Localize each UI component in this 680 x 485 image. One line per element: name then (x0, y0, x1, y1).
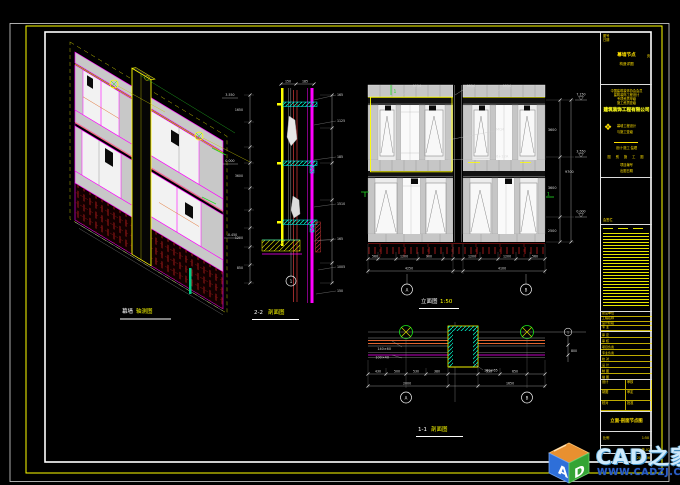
sec2-top-dim: 150 (285, 80, 291, 84)
sec2-level: -0.450 (227, 233, 237, 237)
sec2-note: 150 (337, 289, 343, 293)
drawing-canvas: 1650 3600 1200 850 3.550 0.000 -0.450 15… (0, 0, 680, 485)
title-block: 图号 日期 幕墙节点 页 构造详图 中国建筑装饰协会会员 建筑装饰工程设计 专项… (600, 32, 651, 462)
sec2-note: 165 (337, 237, 343, 241)
elevation-note: MQ4 (503, 84, 512, 88)
elevation-ground-hatch (368, 244, 545, 258)
plan-dim: 530 (413, 370, 419, 374)
titleblock-table: 设计 审核 制图 审定 校对 批准 (601, 380, 652, 412)
axis-letter: B (525, 287, 528, 292)
sec2-left-dim: 1650 (235, 108, 243, 112)
cad-sheet: 1650 3600 1200 850 3.550 0.000 -0.450 15… (0, 0, 680, 485)
box-a-corner2: 日期 (603, 38, 609, 42)
isometric-view (70, 28, 250, 317)
spaced-row: 图 别 施 工 图 (601, 155, 652, 159)
company-name: 建筑装饰工程有限公司 (601, 108, 652, 113)
box-c-label: 会签栏 (603, 218, 613, 222)
elevation-right-dim: 2500 (548, 229, 557, 233)
sec2-level-flags (222, 98, 240, 238)
table-cell: 批准 (626, 401, 652, 411)
elev-dim: 1200 (400, 255, 408, 259)
sec2-note: 1005 (337, 265, 345, 269)
box-a-line1: 幕墙节点 (601, 52, 652, 58)
elevation-block-left (368, 85, 453, 242)
elev-dim: 560 (372, 255, 378, 259)
sec2-level: 3.550 (225, 93, 234, 97)
box-a-line1-side: 页 (647, 54, 650, 58)
sec1-title-white: 1-1 (418, 427, 427, 433)
titleblock-box-b: 中国建筑装饰协会会员 建筑装饰工程设计 专项资质甲级 施工资质壹级 建筑装饰工程… (601, 85, 652, 178)
sec2-note: 165 (337, 93, 343, 97)
sec2-mullion (311, 88, 314, 303)
table-cell: 设计 (601, 380, 626, 390)
sec2-note: 1125 (337, 119, 345, 123)
sec2-sash (291, 196, 300, 218)
iso-title-yellow: 轴测图 (136, 307, 153, 315)
elevation-title-yellow: 1:50 (440, 299, 453, 305)
plan-dim: 2000 (403, 382, 411, 386)
cert-line: 施工资质壹级 (601, 101, 652, 105)
box-a-line2: 构造详图 (601, 62, 652, 67)
plan-side-dim: 800 (571, 349, 577, 353)
tagline: 设计·施工·监理 (601, 146, 652, 150)
elev-dim: 1200 (468, 255, 476, 259)
elevation-right-dim: 3600 (548, 186, 557, 190)
notes-header-dashes (603, 228, 643, 229)
elevation-note: MQ4 (496, 128, 505, 132)
svg-text:1: 1 (394, 89, 397, 95)
iso-title-white: 幕墙 (122, 307, 134, 315)
cadzj-watermark: A D CAD之家 WWW.CADZJ.COM (544, 440, 680, 484)
drawing-titles: 幕墙 轴测图 2-2 剖面图 立面图 1:50 1-1 剖面图 (120, 297, 463, 437)
elevation-note: MQ4 (467, 84, 476, 88)
sec2-leader-lines (314, 95, 336, 294)
sec2-level: 0.000 (225, 159, 234, 163)
sec2-floor-slab (262, 240, 302, 254)
level-value: 3.550 (576, 150, 585, 154)
sec2-top-dim: 185 (302, 80, 308, 84)
sec2-title-white: 2-2 (254, 310, 263, 316)
iso-tower (132, 68, 151, 265)
sec2-title-yellow: 剖面图 (268, 308, 285, 316)
sheet-title: 立面·剖面节点图 (601, 412, 652, 432)
table-cell: 校对 (601, 401, 626, 411)
plan-dim: 530 (486, 370, 492, 374)
divider-line (614, 142, 638, 143)
sec1-title-yellow: 剖面图 (431, 425, 448, 433)
plan-note: 140×60 (377, 347, 391, 351)
axis-letter: A (405, 395, 408, 400)
sec2-note: 1510 (337, 202, 345, 206)
plan-note: 100×40 (375, 356, 389, 360)
elevation-view: MQ4 MQ4 MQ4 MQ4 6+12A 1 1 3600 3600 2500… (361, 84, 587, 295)
plan-dim: 1650 (506, 382, 514, 386)
axis-letter: 1 (567, 330, 569, 334)
sec2-stone-strip (316, 222, 321, 252)
vertical-section-2-2: 1650 3600 1200 850 3.550 0.000 -0.450 15… (222, 80, 345, 304)
sec2-left-dim: 3600 (235, 174, 243, 178)
axis-letter: A (406, 287, 409, 292)
foot1: 项目编号 (601, 163, 652, 167)
plan-dim: 500 (394, 370, 400, 374)
company-logo-icon: ❖ (604, 123, 612, 133)
elev-dim: 4100 (498, 267, 506, 271)
sec2-left-dim: 850 (237, 266, 243, 270)
elevation-level-flags (575, 97, 587, 218)
titleblock-fields: 建设单位 工程名称 设计阶段 专 业 日 期 (601, 312, 652, 332)
level-value: 0.000 (576, 210, 585, 214)
elev-dim: 4250 (405, 267, 413, 271)
elevation-block-right (463, 85, 545, 242)
elevation-right-dim: 3600 (548, 128, 557, 132)
company-sub1: 幕墙工程设计 (617, 124, 636, 128)
elev-dim: 1200 (503, 255, 511, 259)
table-cell: 审定 (626, 390, 652, 400)
elevation-title-white: 立面图 (421, 297, 438, 305)
table-cell: 制图 (601, 390, 626, 400)
titleblock-notes (601, 225, 652, 312)
foot2: 出图日期 (601, 169, 652, 173)
notes-lines (603, 233, 649, 308)
plan-dim: 380 (434, 370, 440, 374)
titleblock-box-a: 图号 日期 幕墙节点 页 构造详图 (601, 32, 652, 85)
cadzj-url: WWW.CADZJ.COM (597, 467, 680, 478)
elevation-total-height: 9700 (565, 170, 574, 174)
plan-dim: 430 (375, 370, 381, 374)
plan-dim: 650 (512, 370, 518, 374)
elevation-note: MQ4 (413, 84, 422, 88)
elevation-note: 6+12A (496, 155, 509, 159)
table-cell: 审核 (626, 380, 652, 390)
level-value: 7.150 (576, 93, 585, 97)
axis-letter: B (526, 395, 529, 400)
cadzj-cube-logo: A D (546, 442, 592, 484)
svg-text:1: 1 (547, 192, 550, 198)
titleblock-staff: 审 定 审 核 项目负责 专业负责 校 对 设 计 制 图 描 图 (601, 332, 652, 380)
elev-dim: 560 (532, 255, 538, 259)
horizontal-section-1-1: 140×60 100×40 180×65 1 800 430 500 530 3… (367, 322, 587, 403)
plan-column (448, 326, 478, 367)
company-sub2: 与施工壹级 (617, 130, 633, 134)
titleblock-box-c: 会签栏 (601, 178, 652, 225)
sec2-note: 185 (337, 155, 343, 159)
sec2-axis-letter: 1 (290, 279, 293, 284)
elev-dim: 900 (426, 255, 432, 259)
